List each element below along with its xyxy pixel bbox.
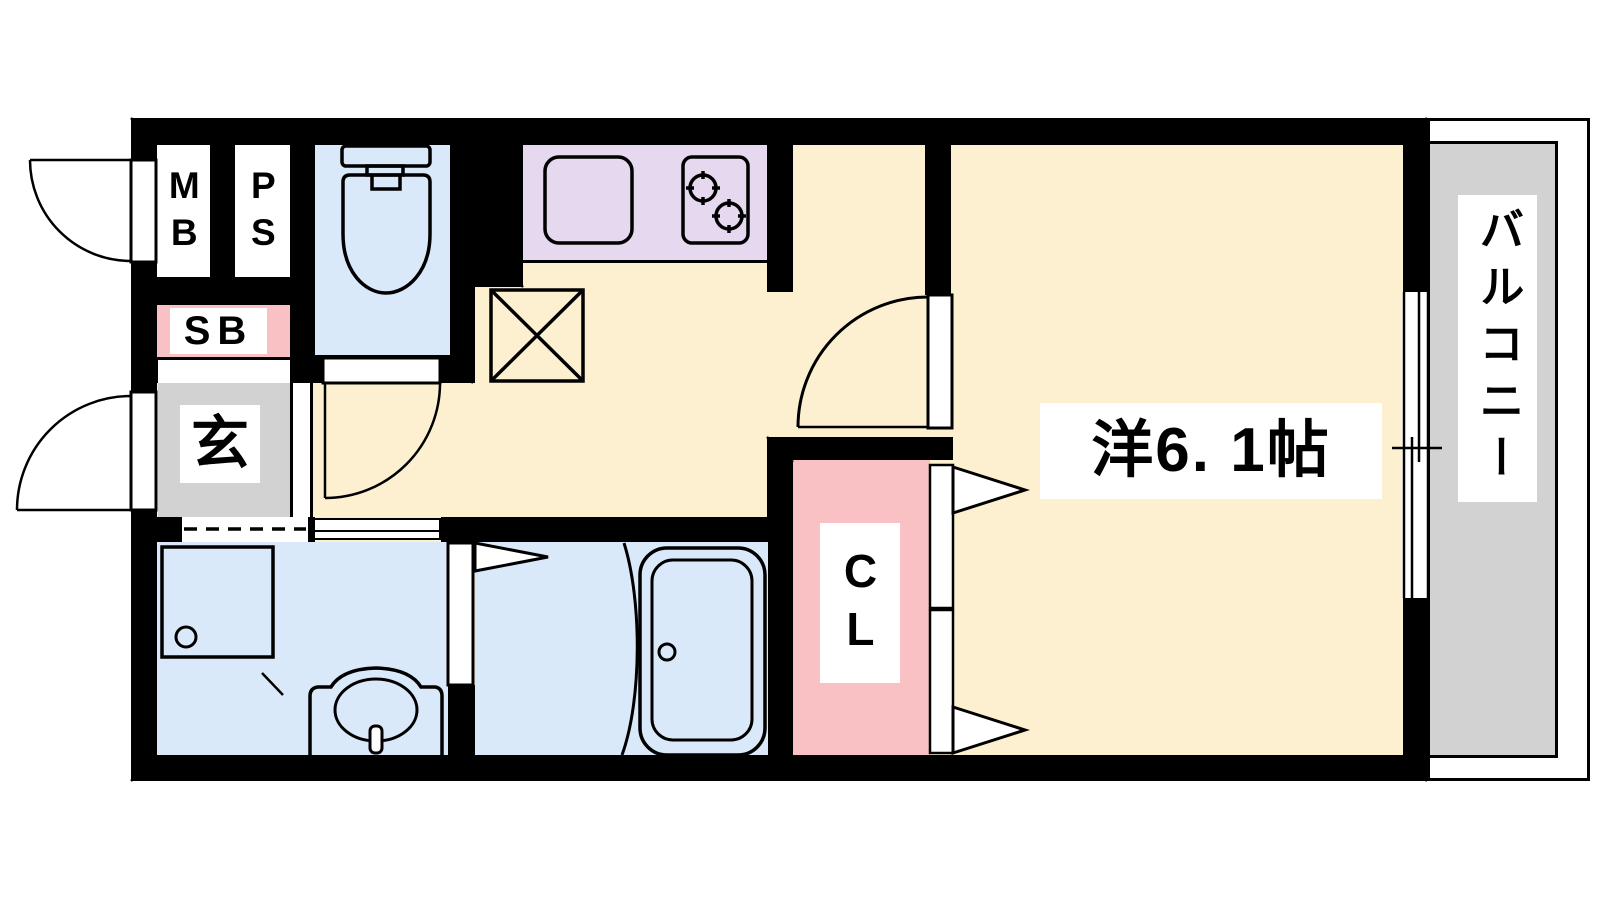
wall-top [131, 118, 1427, 145]
balcony-label: バルコニー [1458, 195, 1537, 502]
wall-kitchen-right [767, 145, 793, 292]
wall-bottom [131, 755, 1427, 781]
wall-segment [445, 685, 475, 755]
wall-left [131, 118, 157, 781]
wall-segment [157, 517, 182, 542]
wall-room-left [925, 145, 951, 295]
pipe-space-label: PS [239, 158, 286, 266]
western-room-label: 洋6. 1帖 [1040, 403, 1382, 499]
kitchen-counter [523, 145, 767, 263]
entrance-label: 玄 [180, 405, 260, 483]
wall-segment [450, 145, 523, 287]
meter-box-label: MB [160, 158, 207, 266]
wall-right [1403, 118, 1427, 781]
bathroom [475, 542, 768, 755]
floorplan: MB PS SB 玄 CL 洋6. 1帖 バルコニー [0, 0, 1600, 900]
wall-closet-top [767, 437, 953, 460]
entrance-step-strip [158, 360, 290, 383]
wall-closet-left [767, 460, 793, 755]
washroom-sliding-door [313, 518, 441, 540]
entrance-edge-strip [290, 383, 313, 517]
open-partition-strip [182, 517, 308, 542]
toilet-room [315, 145, 450, 355]
wall-bathroom-top [475, 517, 768, 542]
wall-toilet-front [313, 355, 475, 383]
wall-segment [441, 517, 475, 542]
shoe-box-label: SB [170, 308, 267, 354]
closet-label: CL [820, 523, 900, 683]
washroom [157, 542, 448, 755]
